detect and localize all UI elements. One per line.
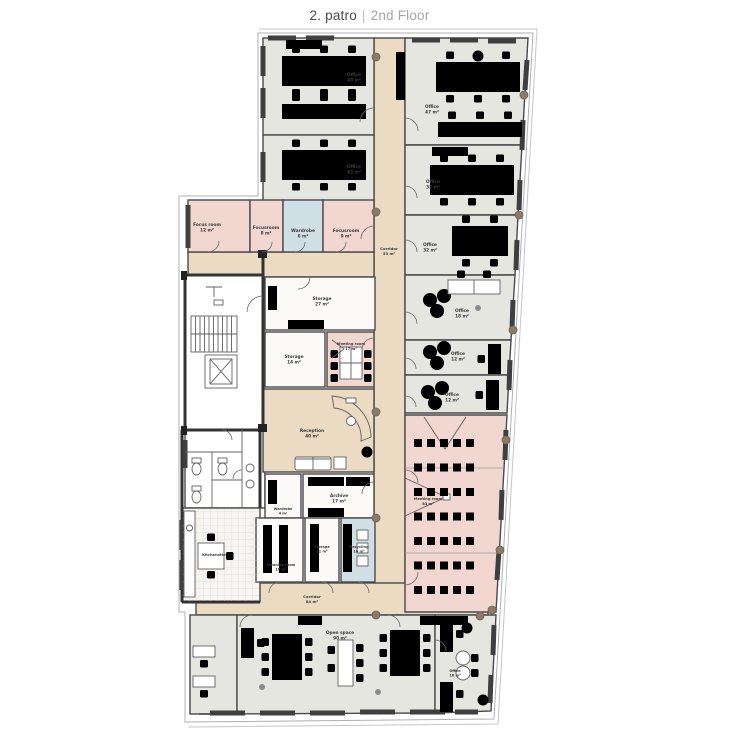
room-label-office-b5: Office12 m²	[451, 351, 465, 363]
room-corridor-main	[374, 38, 405, 615]
room-corridor-link	[188, 252, 374, 277]
office-b2-shelf	[432, 147, 468, 156]
room-label-archive: Archive17 m²	[330, 493, 348, 505]
room-label-office-b6: Office12 m²	[445, 392, 459, 404]
room-stair-core	[185, 275, 263, 430]
wardrobe-shelf	[268, 480, 277, 504]
room-office-small-left	[190, 615, 237, 714]
room-label-office-a1: Office48 m²	[347, 72, 361, 84]
room-focus-room-3	[323, 200, 374, 252]
room-label-storage-14: Storage14 m²	[284, 354, 303, 366]
room-label-storage-27: Storage27 m²	[312, 296, 331, 308]
room-copy-wardrobe	[283, 200, 323, 252]
reception-plant	[362, 447, 373, 458]
room-office-a1	[263, 38, 374, 135]
room-label-office-b1: Office47 m²	[425, 104, 439, 116]
room-label-office-b7: Office18 m²	[449, 669, 461, 678]
room-label-office-a2: Office43 m²	[347, 164, 361, 176]
corridor-shelf	[396, 52, 405, 100]
floor-plan-canvas: Corridor53 m²Corridor84 m²Office48 m²Off…	[0, 0, 739, 755]
office-a1-shelf	[286, 40, 322, 49]
room-label-office-b2: Office32 m²	[426, 179, 440, 191]
room-label-office-b3: Office32 m²	[423, 242, 437, 254]
room-label-office-b4: Office18 m²	[455, 308, 469, 320]
room-label-kitchenette: Kitchenette	[202, 553, 226, 557]
floor-plan-page: 2. patro|2nd Floor	[0, 0, 739, 755]
office-b2-furniture	[430, 153, 514, 206]
